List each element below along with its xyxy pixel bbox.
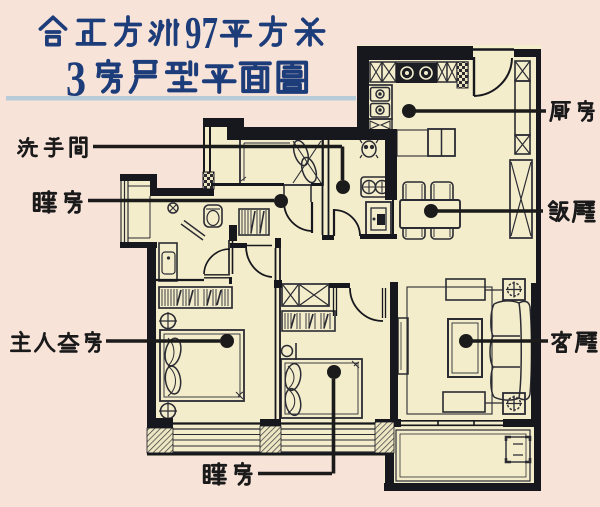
- svg-text:97: 97: [185, 8, 218, 58]
